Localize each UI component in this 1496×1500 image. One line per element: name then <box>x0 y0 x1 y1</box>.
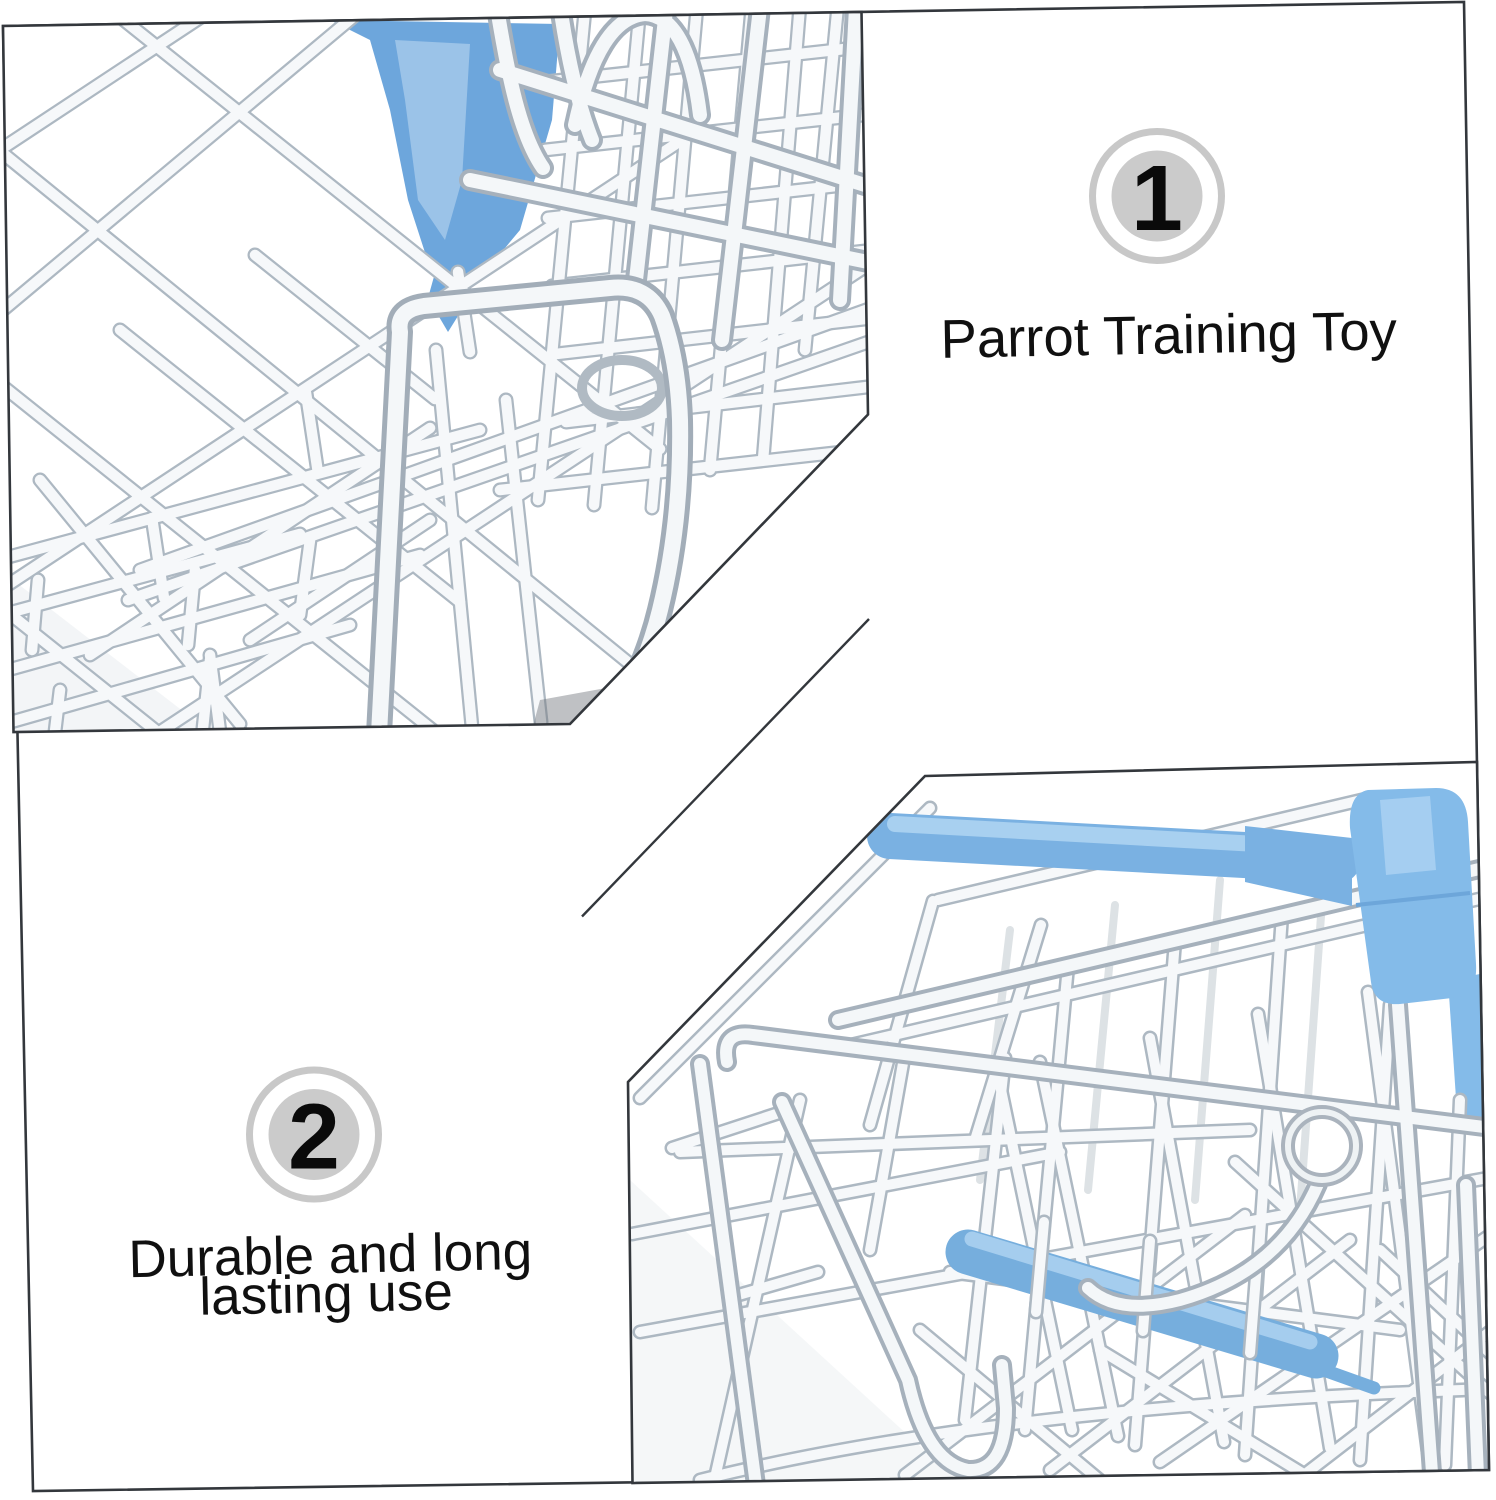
svg-text:1: 1 <box>1131 146 1183 250</box>
svg-text:2: 2 <box>288 1085 340 1189</box>
svg-text:lasting use: lasting use <box>199 1262 454 1326</box>
svg-text:Parrot Training Toy: Parrot Training Toy <box>940 300 1398 370</box>
